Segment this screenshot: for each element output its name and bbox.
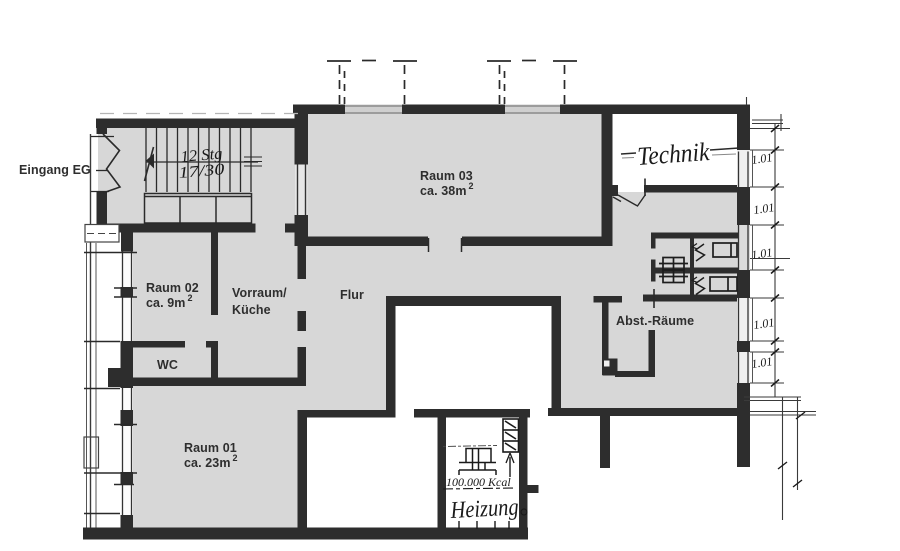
svg-text:Eingang EG: Eingang EG	[19, 163, 91, 177]
svg-text:100.000 Kcal: 100.000 Kcal	[446, 475, 511, 489]
svg-text:1.01: 1.01	[750, 245, 773, 262]
svg-text:Abst.-Räume: Abst.-Räume	[616, 314, 694, 328]
svg-text:1.01: 1.01	[750, 150, 773, 167]
svg-text:1.01: 1.01	[750, 354, 773, 371]
svg-text:2: 2	[469, 181, 474, 191]
svg-text:Raum 01: Raum 01	[184, 441, 237, 455]
svg-text:ca. 38m: ca. 38m	[420, 184, 467, 198]
svg-text:Vorraum/: Vorraum/	[232, 286, 287, 300]
svg-text:Raum 03: Raum 03	[420, 169, 473, 183]
svg-text:WC: WC	[157, 358, 178, 372]
svg-text:Technik: Technik	[636, 137, 710, 171]
svg-text:ca. 9m: ca. 9m	[146, 296, 186, 310]
svg-text:1.01: 1.01	[752, 315, 775, 332]
svg-text:2: 2	[233, 453, 238, 463]
svg-text:1.01: 1.01	[752, 200, 775, 217]
svg-text:Flur: Flur	[340, 288, 364, 302]
svg-text:Küche: Küche	[232, 303, 271, 317]
svg-text:ca. 23m: ca. 23m	[184, 456, 231, 470]
svg-text:Heizung: Heizung	[449, 494, 519, 524]
svg-text:2: 2	[188, 293, 193, 303]
